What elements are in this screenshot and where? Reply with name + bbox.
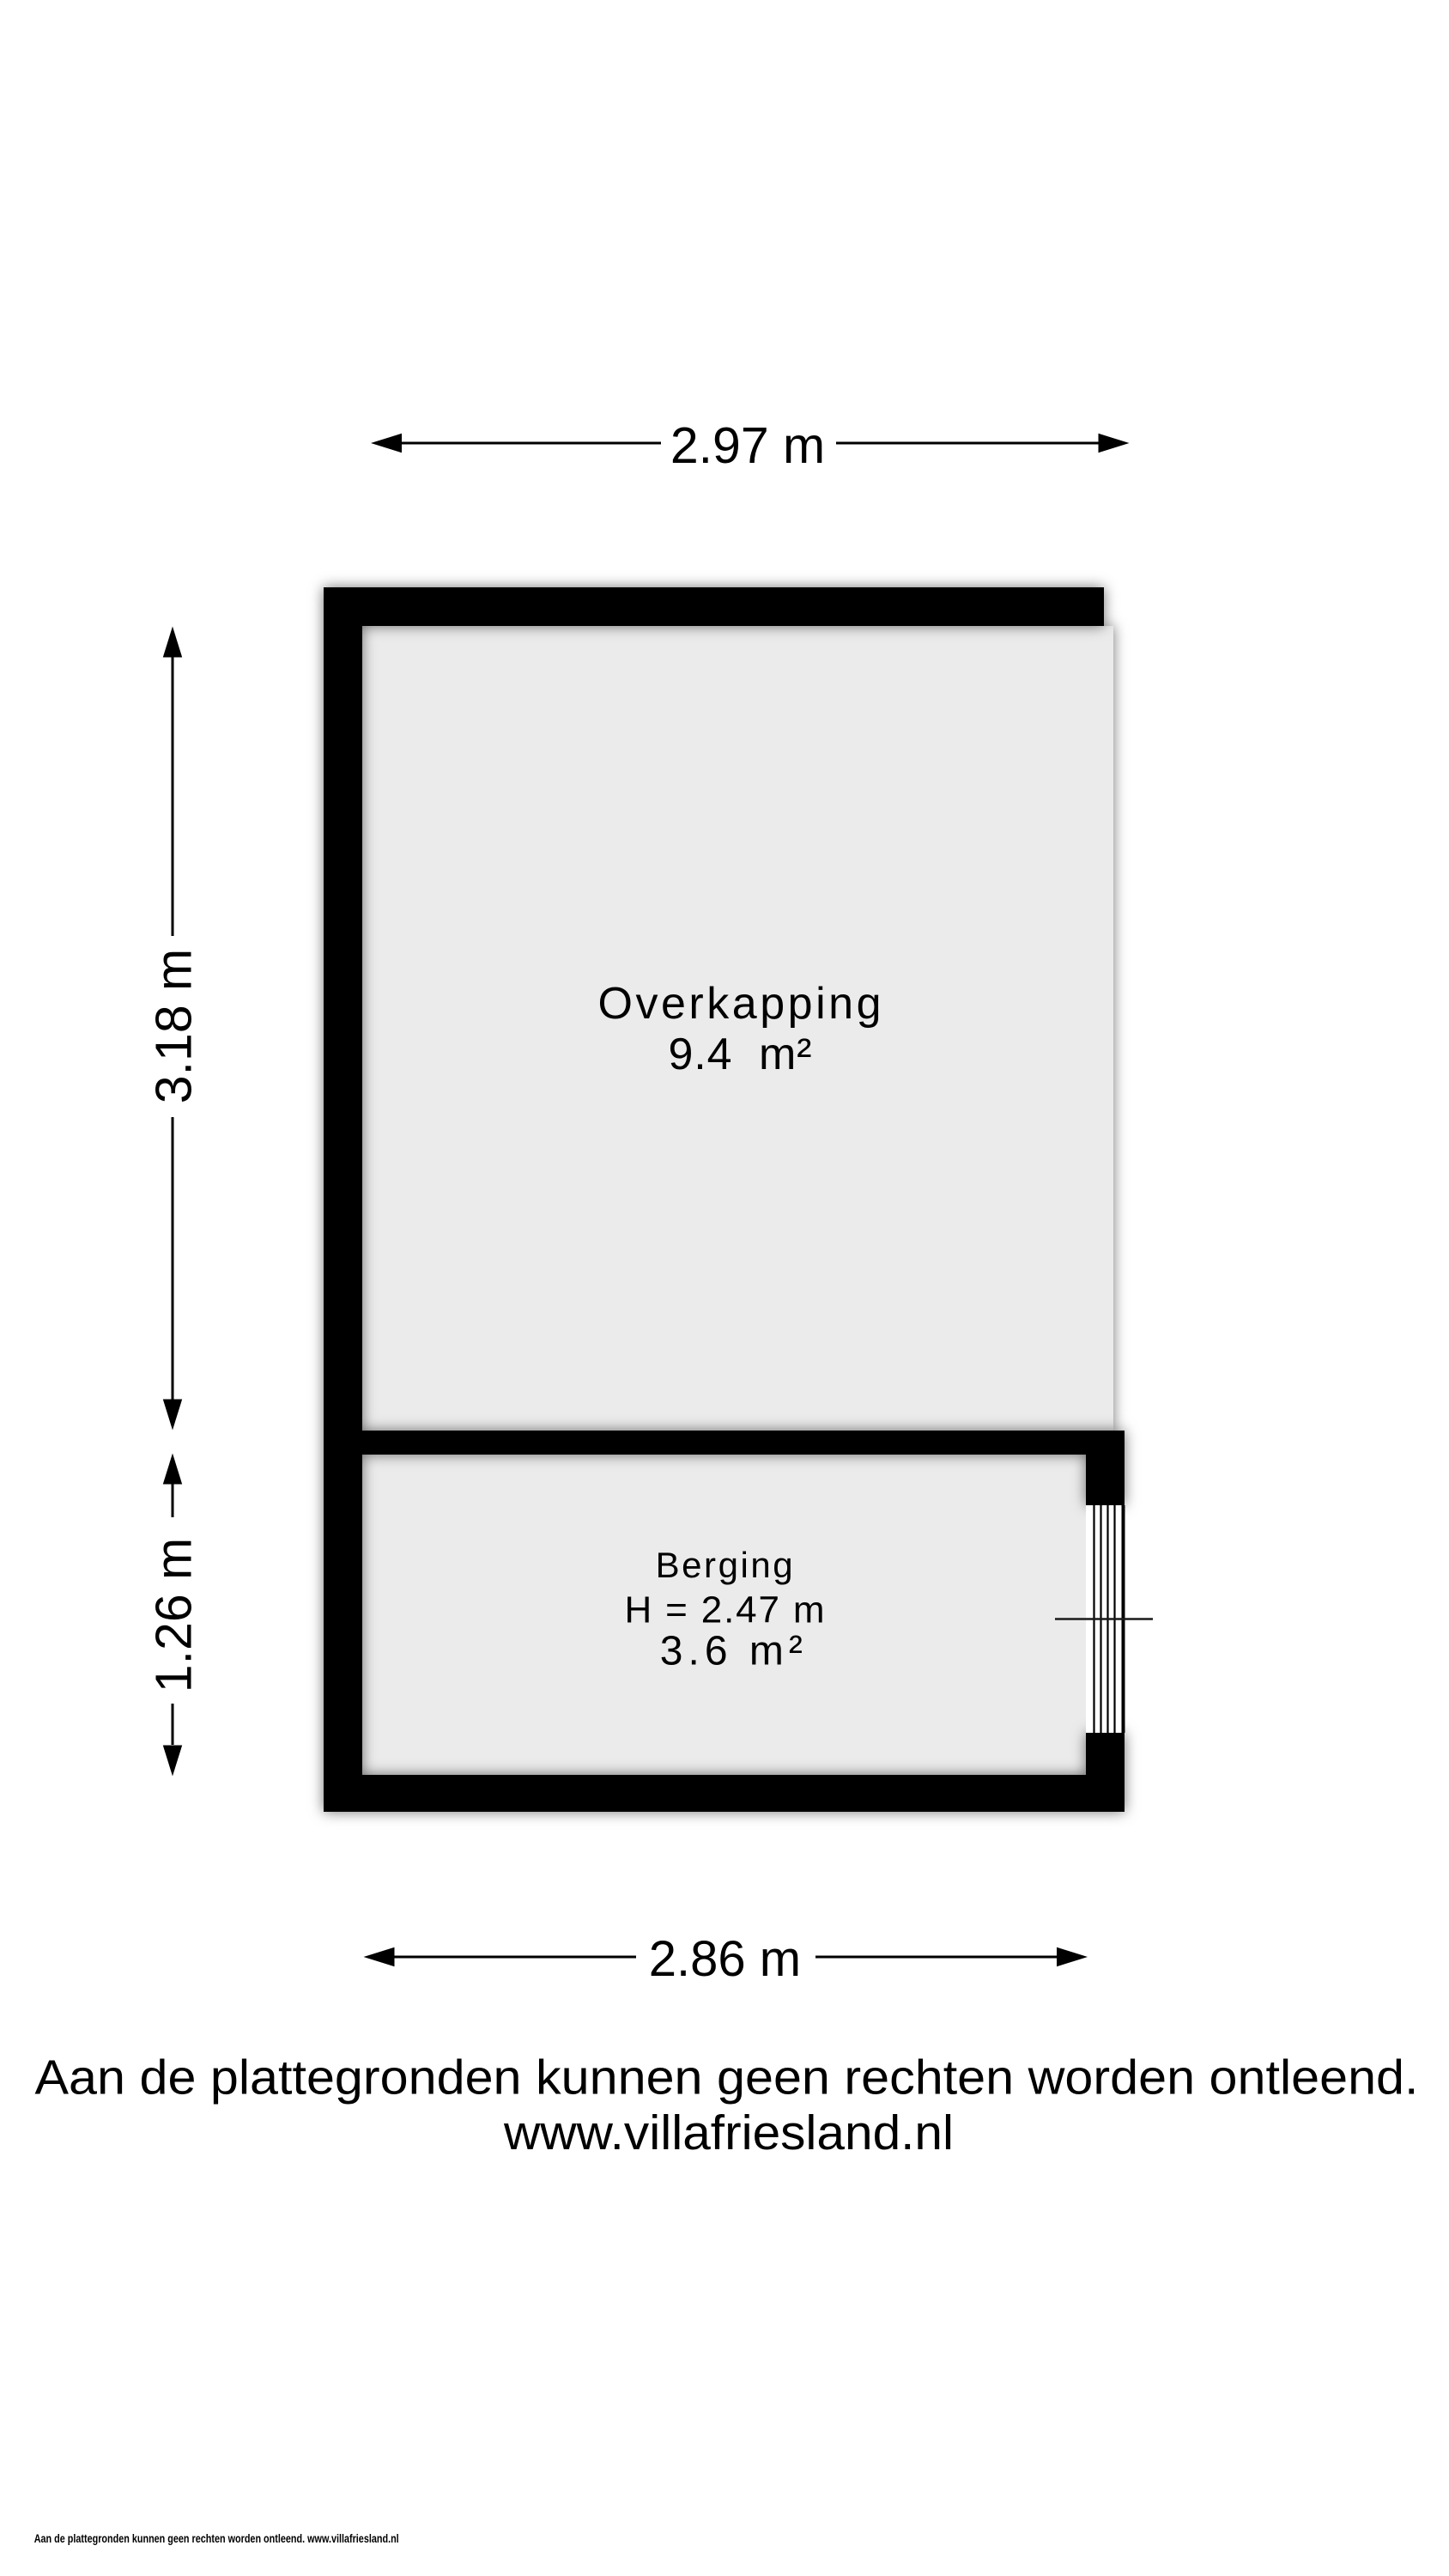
svg-text:Aan de plattegronden kunnen ge: Aan de plattegronden kunnen geen rechten… [35,2050,1419,2105]
svg-text:Aan de plattegronden kunnen ge: Aan de plattegronden kunnen geen rechten… [34,2531,399,2545]
svg-text:1.26 m: 1.26 m [146,1538,203,1692]
svg-text:H = 2.47 m: H = 2.47 m [625,1589,825,1631]
svg-text:Overkapping: Overkapping [598,979,882,1029]
svg-text:9.4 m²: 9.4 m² [669,1030,812,1079]
svg-text:2.97 m: 2.97 m [670,417,825,474]
svg-text:2.86 m: 2.86 m [649,1931,801,1987]
svg-text:3.18 m: 3.18 m [146,949,203,1103]
svg-text:www.villafriesland.nl: www.villafriesland.nl [503,2105,954,2160]
svg-text:Berging: Berging [656,1545,793,1585]
